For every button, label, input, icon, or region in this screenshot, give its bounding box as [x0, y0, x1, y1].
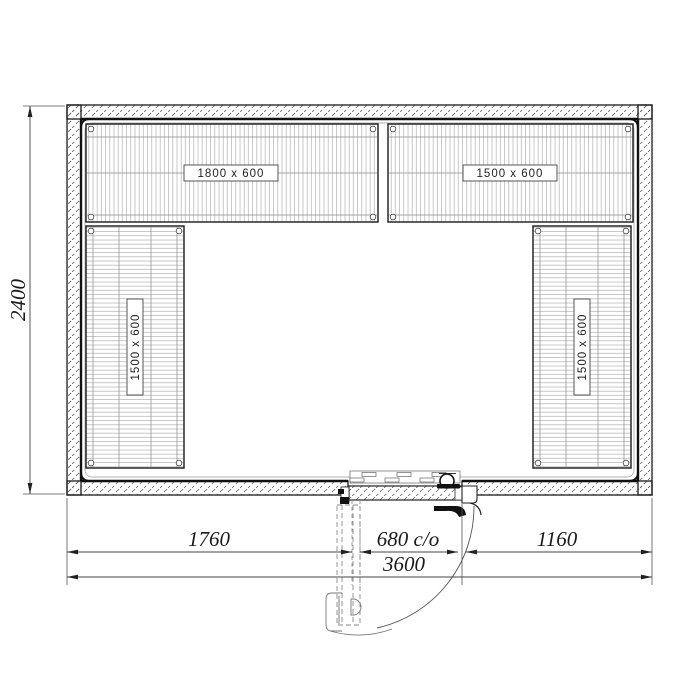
wall-bottom-right — [462, 481, 652, 495]
shelf-post-icon — [88, 126, 94, 132]
dim-left-of-door: 1760 — [188, 527, 231, 551]
shelf-post-icon — [623, 228, 629, 234]
wall-left — [67, 105, 81, 495]
shelf-top-right: 1500 x 600 — [388, 124, 633, 222]
shelf-post-icon — [88, 214, 94, 220]
dim-right-of-door: 1160 — [537, 527, 578, 551]
shelf-post-icon — [535, 460, 541, 466]
dim-room-height: 2400 — [6, 279, 30, 322]
shelf-right: 1500 x 600 — [533, 226, 631, 468]
door-open-position — [337, 505, 360, 625]
wall-right — [638, 105, 652, 495]
shelf-left: 1500 x 600 — [86, 226, 184, 468]
shelf-post-icon — [370, 126, 376, 132]
door-latch-block — [455, 487, 462, 500]
shelf-label: 1800 x 600 — [198, 168, 265, 180]
shelf-post-icon — [623, 460, 629, 466]
lock-base-icon — [437, 484, 460, 489]
dim-door-opening: 680 c/o — [377, 527, 439, 551]
door-jamb-bracket — [470, 503, 481, 515]
door-handle-icon — [434, 506, 466, 517]
dim-total-width: 3600 — [382, 552, 426, 576]
door-hinge-icon — [338, 489, 344, 494]
shelf-label: 1500 x 600 — [577, 314, 589, 381]
floor-plan-svg: 1800 x 600 1500 x 600 1500 x 600 1500 x … — [0, 0, 700, 700]
shelf-post-icon — [535, 228, 541, 234]
floor-plan-drawing: 1800 x 600 1500 x 600 1500 x 600 1500 x … — [0, 0, 700, 700]
open-door-handle — [326, 593, 392, 635]
shelf-post-icon — [88, 460, 94, 466]
wall-top — [67, 105, 652, 119]
shelf-label: 1500 x 600 — [130, 314, 142, 381]
door-jamb-block — [462, 486, 477, 503]
shelf-post-icon — [625, 214, 631, 220]
shelf-post-icon — [370, 214, 376, 220]
shelf-top-left: 1800 x 600 — [86, 124, 378, 222]
shelf-post-icon — [625, 126, 631, 132]
shelf-post-icon — [88, 228, 94, 234]
shelf-label: 1500 x 600 — [477, 168, 544, 180]
wall-bottom-left — [67, 481, 348, 495]
shelf-post-icon — [390, 126, 396, 132]
shelf-post-icon — [176, 228, 182, 234]
door-hinge-icon — [340, 497, 349, 504]
shelf-post-icon — [176, 460, 182, 466]
shelf-post-icon — [390, 214, 396, 220]
